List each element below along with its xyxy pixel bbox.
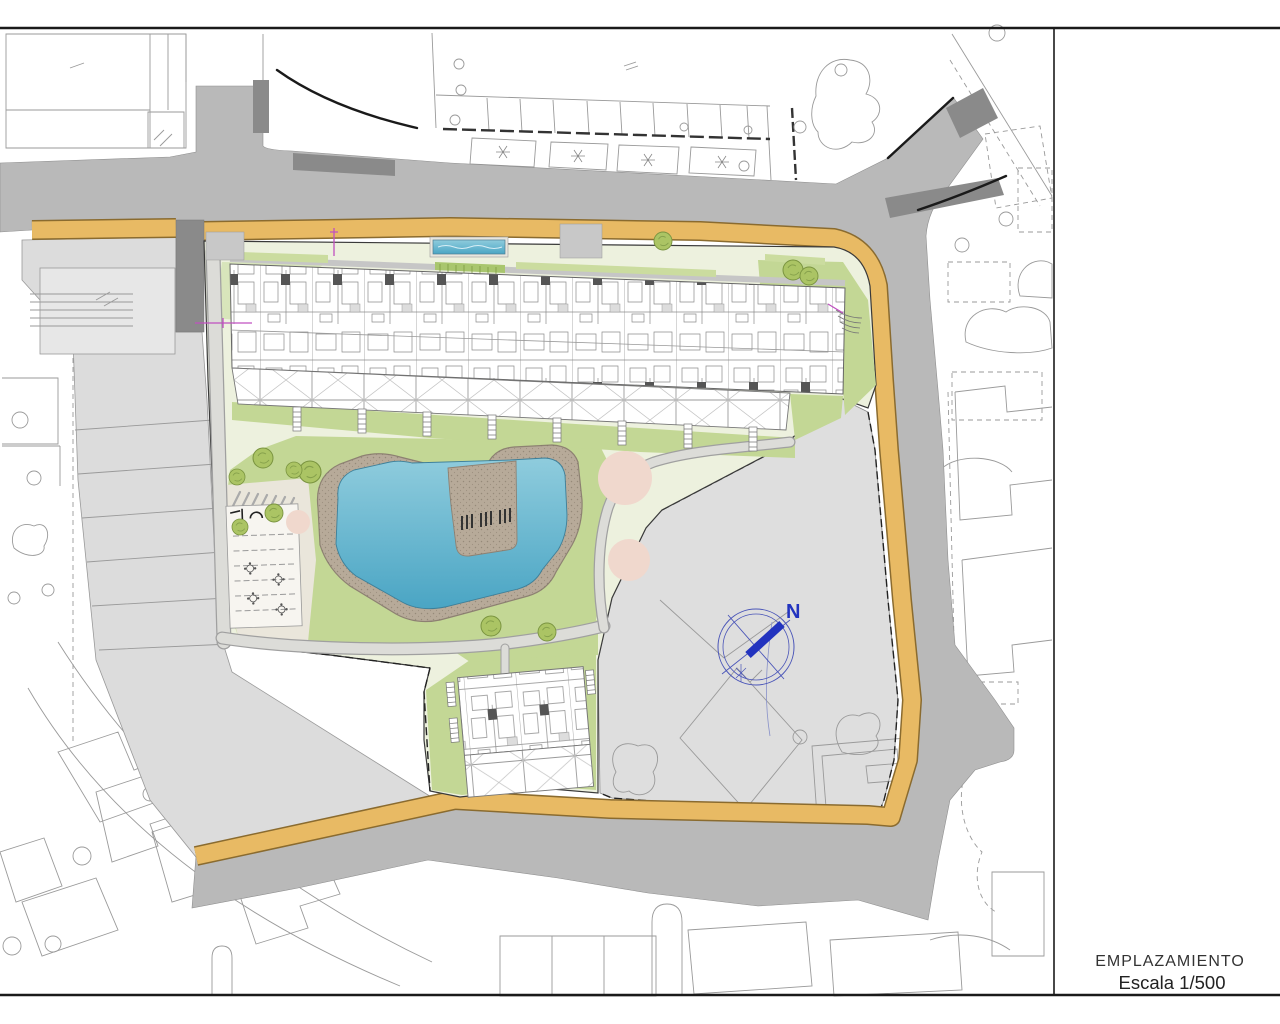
drawing-title: EMPLAZAMIENTO: [1095, 953, 1245, 970]
curb-line: [277, 70, 417, 128]
existing-building-west: [40, 268, 175, 354]
small-apartment-building: [446, 666, 604, 798]
drawing-scale: Escala 1/500: [1119, 972, 1226, 993]
site-plan-drawing: N EMPLAZAMIENTO Escala 1/500: [0, 0, 1280, 1024]
site-plan-page: N EMPLAZAMIENTO Escala 1/500: [0, 0, 1280, 1024]
entrance-walk-west: [206, 232, 244, 260]
title-block: EMPLAZAMIENTO Escala 1/500: [1095, 953, 1245, 993]
north-label: N: [786, 601, 800, 623]
driveway-entrance: [176, 220, 204, 332]
entrance-walk-center: [560, 224, 602, 258]
